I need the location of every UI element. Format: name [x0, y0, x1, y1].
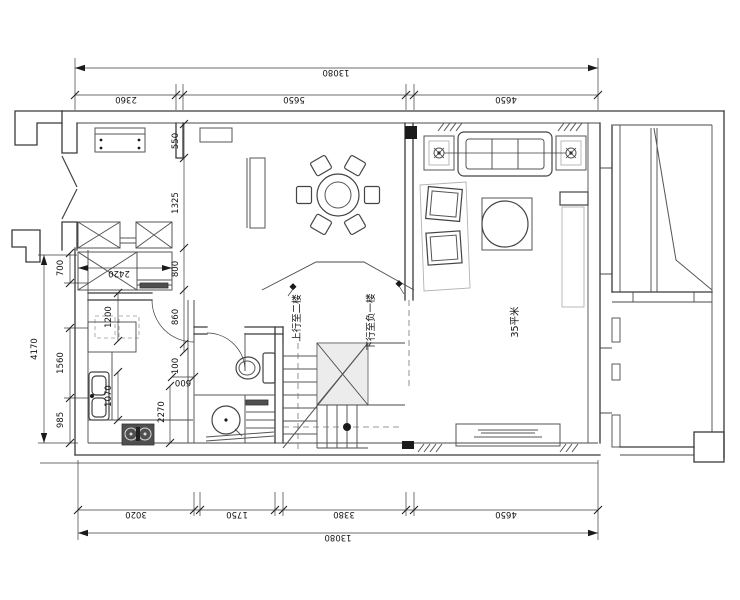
dining-chairs: [297, 155, 380, 235]
sideboard: [250, 158, 265, 228]
wall-dining-living: [405, 123, 413, 300]
floor-plan-drawing: 13080 2360 5650 4650 3020 1750 3380 4650…: [0, 0, 740, 600]
dim-top-3: 4650: [495, 94, 517, 104]
living-room: [418, 123, 588, 452]
bathroom-shelves: [246, 400, 275, 428]
vent-hatch: [558, 123, 582, 131]
dim-100: 100: [171, 358, 181, 374]
bathroom: [194, 333, 275, 443]
vent-hatch: [560, 444, 578, 452]
dim-1070: 1070: [104, 385, 114, 407]
dim-top-1: 2360: [115, 94, 137, 104]
sofa: [458, 132, 552, 176]
console-right: [560, 192, 588, 307]
toilet: [236, 353, 275, 383]
stair-treads-down: [327, 405, 357, 448]
column-top: [405, 126, 417, 139]
dining-chamfer-edge: [262, 262, 414, 290]
dining-table: [317, 174, 359, 216]
dim-top-2: 5650: [283, 94, 305, 104]
entry-closet-upper: [78, 222, 172, 248]
pilaster-top-left: [15, 111, 62, 145]
dim-1200: 1200: [104, 306, 114, 328]
dim-left-overall: 4170: [30, 338, 40, 360]
column-bottom: [402, 441, 414, 449]
entry-bench: [95, 128, 145, 152]
dim-chain-top: 13080 2360 5650 4650: [71, 58, 602, 110]
staircase: [283, 343, 405, 450]
stair-treads-up: [283, 356, 317, 434]
dim-550: 550: [171, 133, 181, 149]
floor-plan-canvas: 13080 2360 5650 4650 3020 1750 3380 4650…: [0, 0, 740, 600]
dim-2420: 2420: [108, 268, 130, 278]
dim-bottom-4: 4650: [495, 509, 517, 519]
duct-niche: [188, 300, 194, 443]
outdoor-stair-diagonal: [654, 128, 712, 290]
dim-bottom-2: 1750: [226, 509, 248, 519]
vent-hatch: [418, 444, 442, 452]
pilaster-mid-left: [12, 230, 40, 262]
dim-bottom-3: 3380: [333, 509, 355, 519]
armchairs: [420, 182, 470, 291]
dim-1325: 1325: [171, 192, 181, 214]
dim-top-overall: 13080: [322, 67, 349, 77]
entry-area: [78, 128, 172, 290]
label-stairs-down: 下行至负一楼: [365, 293, 377, 351]
stove: [122, 424, 154, 445]
wall-lamp-symbols: [288, 280, 404, 296]
dim-860: 860: [171, 309, 181, 325]
vent-hatch: [438, 123, 462, 131]
dim-bottom-overall: 13080: [324, 532, 351, 542]
dining-room: [200, 128, 414, 296]
dim-left-1: 700: [56, 260, 66, 276]
dim-left-2: 1560: [56, 352, 66, 374]
adjacent-stair-block: [612, 111, 724, 462]
dim-bottom-1: 3020: [125, 509, 147, 519]
label-area: 35平米: [509, 306, 521, 338]
stair-newel: [343, 423, 351, 431]
entry-double-door: [62, 156, 77, 219]
dim-800: 800: [171, 261, 181, 277]
annotations: 上行至二楼 下行至负一楼 35平米: [291, 293, 521, 351]
wall-cabinet: [200, 128, 232, 142]
label-stairs-up: 上行至二楼: [291, 294, 303, 342]
wash-basin: [212, 406, 242, 436]
bottom-right-step: [694, 432, 724, 462]
dim-chain-left: 4170 700 1560 985: [30, 249, 88, 447]
dim-600: 600: [175, 377, 191, 387]
coffee-table: [482, 198, 532, 250]
dim-left-3: 985: [56, 412, 66, 428]
dim-chain-bottom: 3020 1750 3380 4650 13080: [40, 460, 602, 542]
dim-2270: 2270: [157, 401, 167, 423]
